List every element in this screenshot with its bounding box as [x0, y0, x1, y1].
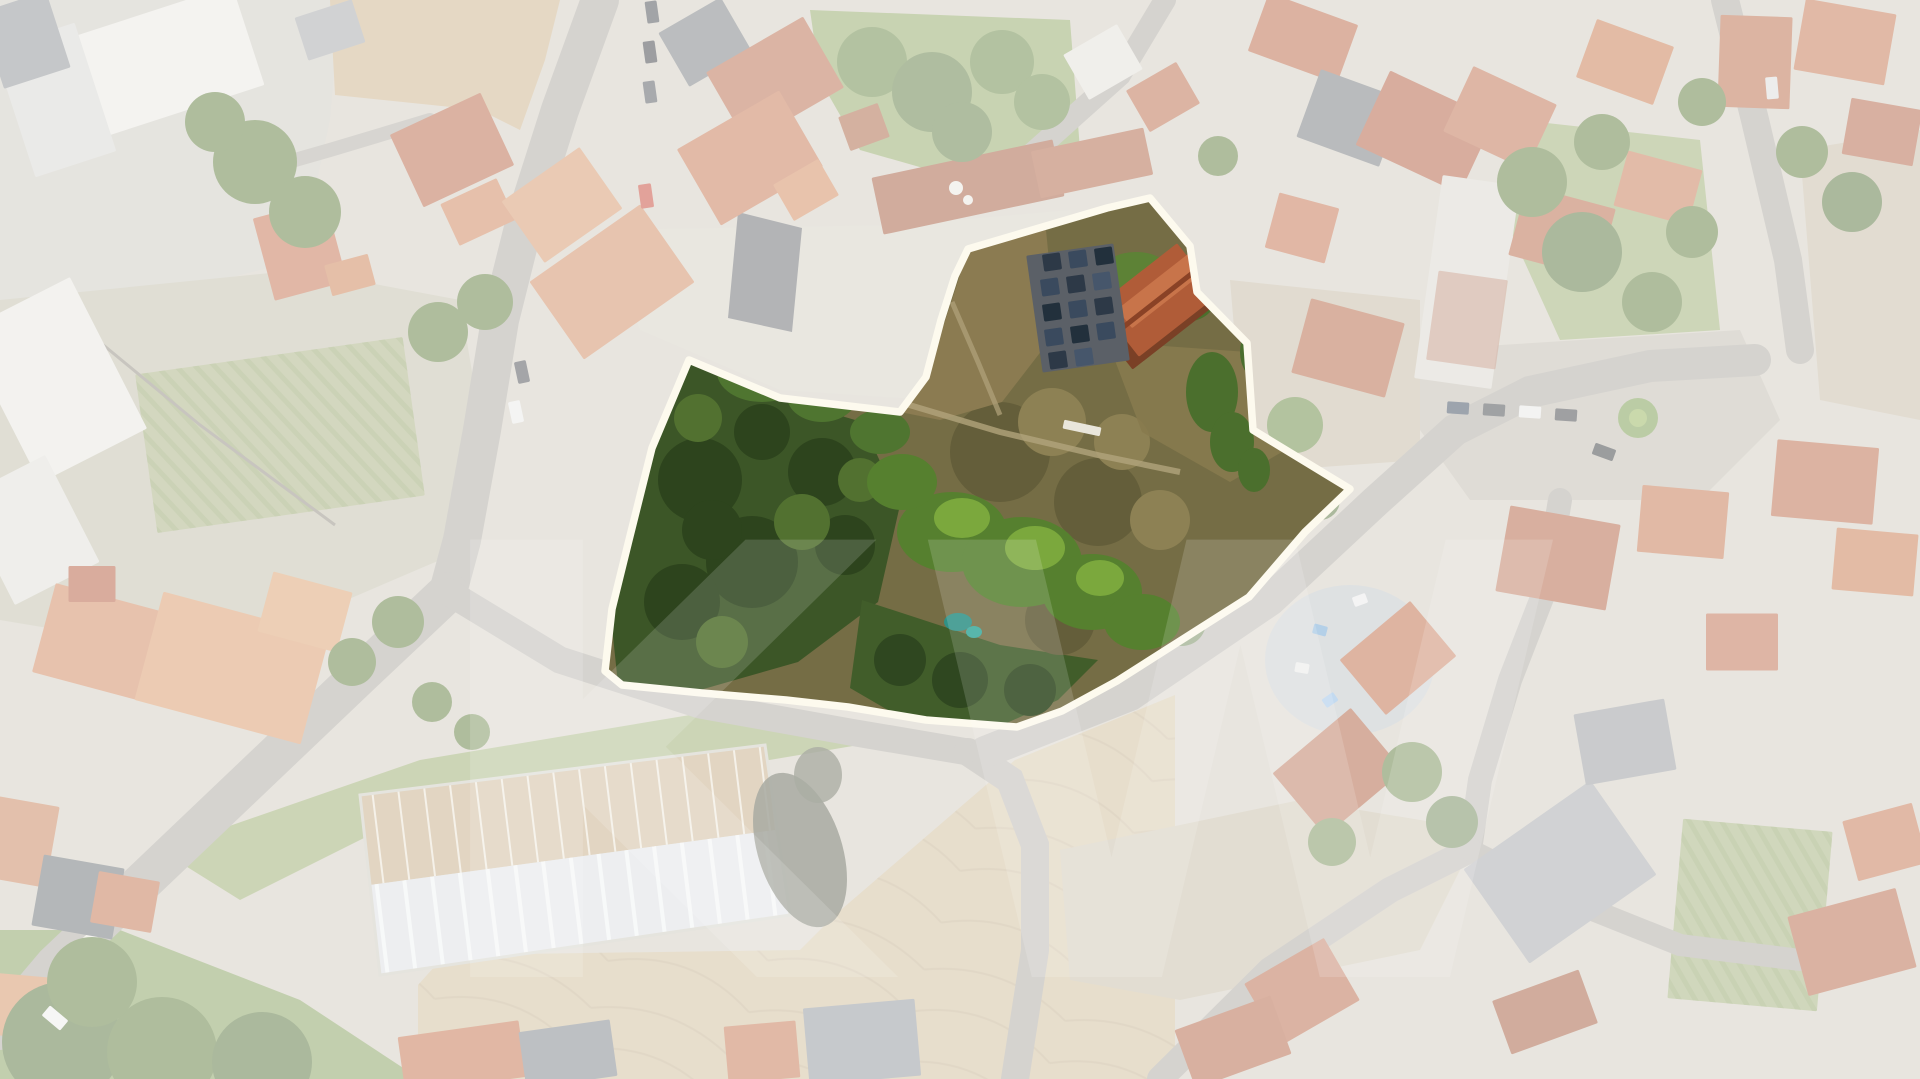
bush [867, 454, 937, 510]
bush-light [1005, 526, 1065, 570]
parcel-zone-57 [1092, 271, 1112, 290]
parcel-zone-10 [774, 494, 830, 550]
bush-light [934, 498, 990, 538]
parcel-zone-64 [1048, 350, 1068, 369]
teal-tarp [966, 626, 982, 638]
bush [1104, 594, 1180, 650]
parcel-zone-6 [734, 404, 790, 460]
parcel-zone-63 [1096, 321, 1116, 340]
parcel-zone-60 [1094, 296, 1114, 315]
bush [1238, 448, 1270, 492]
parcel-zone-52 [1042, 252, 1062, 271]
aerial-photo [0, 0, 1920, 1079]
bush [850, 410, 910, 454]
aerial-property-screenshot: KW [0, 0, 1920, 1079]
parcel-zone-24 [1130, 490, 1190, 550]
parcel-zone-56 [1066, 274, 1086, 293]
parcel-zone-15 [932, 652, 988, 708]
parcel-zone-55 [1040, 277, 1060, 296]
parcel-zone-14 [874, 634, 926, 686]
parcel-zone-7 [682, 500, 742, 560]
parcel-zone-53 [1068, 249, 1088, 268]
parcel-zone-65 [1074, 347, 1094, 366]
parcel-zone-58 [1042, 302, 1062, 321]
parcel-zone-16 [1004, 664, 1056, 716]
parcel-zone-59 [1068, 299, 1088, 318]
parcel-zone-62 [1070, 324, 1090, 343]
parcel-zone-9 [674, 394, 722, 442]
parcel-zone-54 [1094, 246, 1114, 265]
bush-light [1076, 560, 1124, 596]
parcel-zone-11 [696, 616, 748, 668]
parcel-zone-61 [1044, 327, 1064, 346]
